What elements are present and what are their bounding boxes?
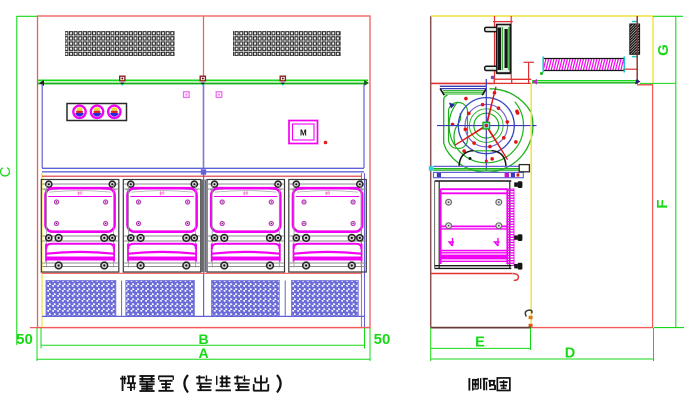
svg-text:ϕ8: ϕ8 [325, 190, 331, 195]
svg-text:50: 50 [16, 331, 33, 348]
svg-text:E: E [475, 335, 485, 351]
svg-text:G: G [655, 44, 672, 56]
svg-text:ϕ8: ϕ8 [77, 190, 83, 195]
svg-text:M: M [300, 129, 307, 138]
svg-text:F: F [654, 199, 671, 208]
svg-text:C: C [0, 166, 14, 177]
svg-text:ϕ8: ϕ8 [159, 190, 165, 195]
svg-text:D: D [565, 346, 575, 362]
svg-text:ϕ8: ϕ8 [243, 190, 249, 195]
svg-text:50: 50 [374, 331, 391, 348]
svg-text:A: A [198, 345, 208, 361]
